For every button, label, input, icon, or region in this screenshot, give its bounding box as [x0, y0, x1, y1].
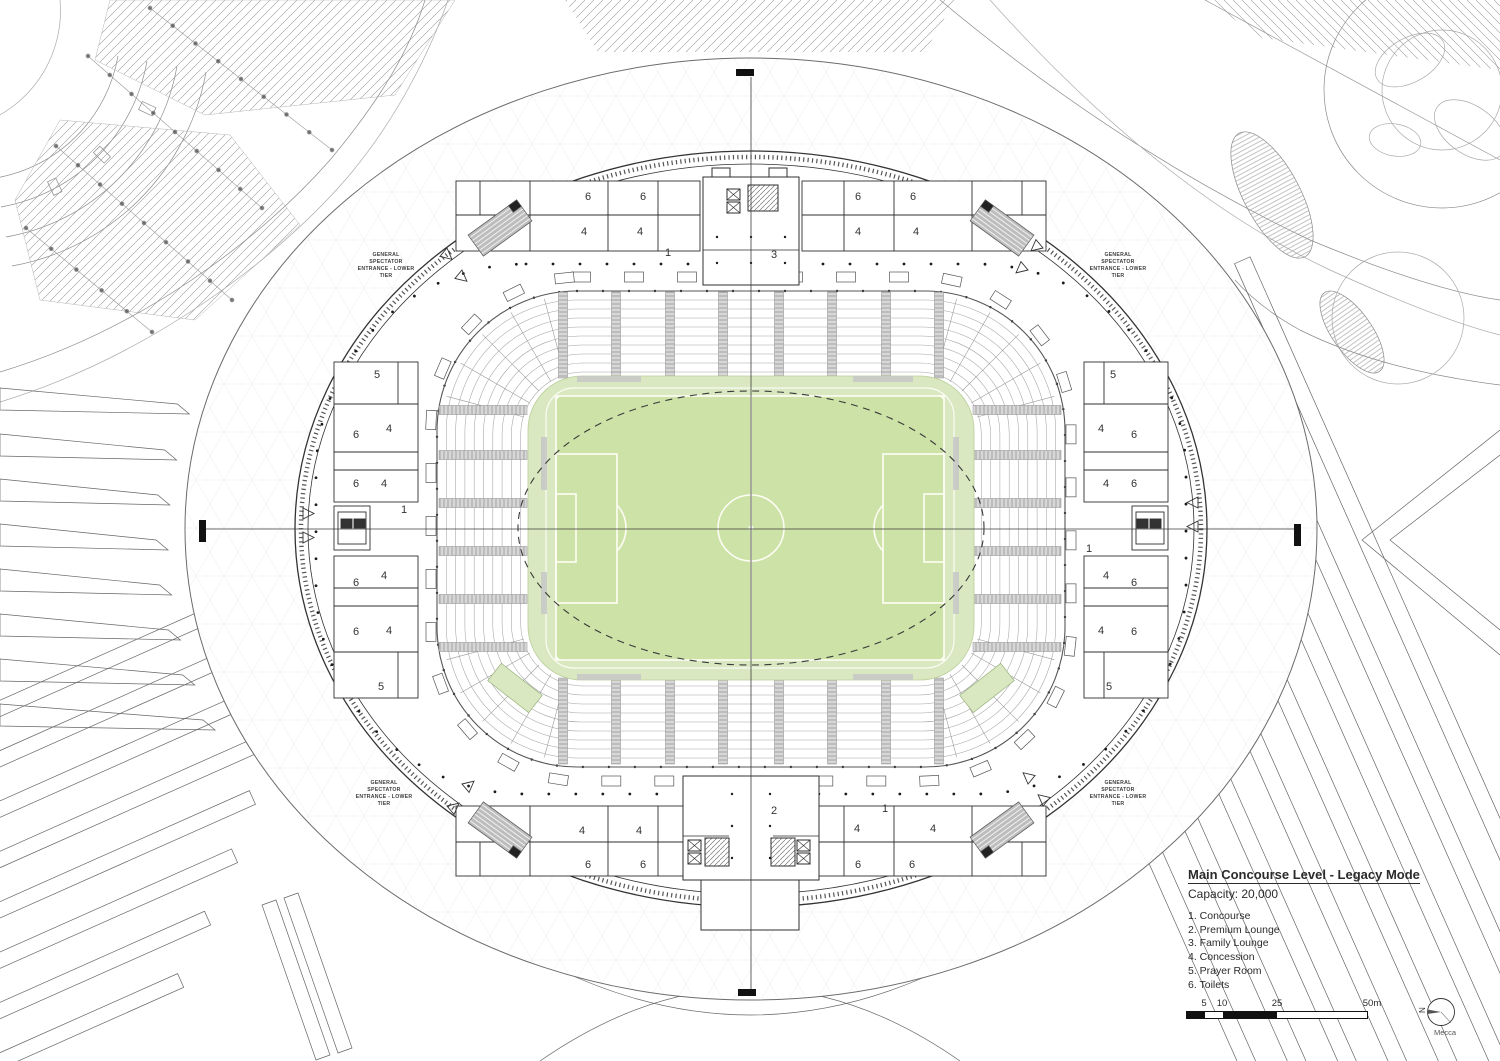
scale-tick: 10 [1217, 998, 1228, 1009]
legend-title: Main Concourse Level - Legacy Mode [1188, 867, 1420, 884]
legend-item: 3. Family Lounge [1188, 937, 1448, 951]
room-number-label: 4 [854, 823, 860, 835]
room-number-label: 3 [771, 249, 777, 261]
room-number-label: 4 [636, 825, 642, 837]
room-number-label: 6 [855, 191, 861, 203]
room-number-label: 5 [374, 369, 380, 381]
legend-capacity: Capacity: 20,000 [1188, 887, 1448, 901]
room-number-label: 4 [1103, 570, 1109, 582]
room-number-label: 1 [1086, 543, 1092, 555]
room-number-label: 6 [1131, 429, 1137, 441]
road-hatch-band [565, 0, 955, 52]
room-number-label: 4 [386, 625, 392, 637]
compass-north-label: N [1418, 1007, 1427, 1013]
legend-item: 6. Toilets [1188, 979, 1448, 993]
axis-tick-top [736, 69, 754, 76]
legend-item: 2. Premium Lounge [1188, 924, 1448, 938]
room-number-label: 4 [581, 226, 587, 238]
room-number-label: 5 [1110, 369, 1116, 381]
road-hatch-band [1205, 0, 1500, 70]
room-number-label: 6 [585, 859, 591, 871]
scale-tick: 50m [1363, 998, 1381, 1009]
room-number-label: 6 [910, 191, 916, 203]
room-number-label: 6 [1131, 626, 1137, 638]
room-number-label: 4 [637, 226, 643, 238]
room-number-label: 6 [353, 429, 359, 441]
room-number-label: 6 [353, 626, 359, 638]
room-number-label: 4 [930, 823, 936, 835]
axis-tick-right [1294, 524, 1301, 546]
room-number-label: 1 [882, 803, 888, 815]
room-number-label: 6 [909, 859, 915, 871]
room-number-label: 6 [353, 478, 359, 490]
legend-items: 1. Concourse 2. Premium Lounge 3. Family… [1188, 910, 1448, 992]
room-number-label: 4 [855, 226, 861, 238]
room-number-label: 5 [1106, 681, 1112, 693]
scale-tick: 5 [1201, 998, 1206, 1009]
room-number-label: 4 [381, 570, 387, 582]
legend-item: 1. Concourse [1188, 910, 1448, 924]
room-number-label: 6 [585, 191, 591, 203]
room-number-label: 6 [640, 191, 646, 203]
north-mecca-compass: N Mecca [1412, 984, 1476, 1048]
room-number-label: 1 [401, 504, 407, 516]
room-number-label: 6 [640, 859, 646, 871]
axis-tick-bottom [738, 989, 756, 996]
compass-mecca-label: Mecca [1434, 1028, 1457, 1037]
room-number-label: 1 [665, 247, 671, 259]
room-number-label: 4 [1098, 625, 1104, 637]
room-number-label: 4 [1098, 423, 1104, 435]
room-number-label: 4 [386, 423, 392, 435]
room-number-label: 5 [378, 681, 384, 693]
room-number-label: 4 [913, 226, 919, 238]
room-number-label: 6 [353, 577, 359, 589]
floor-plan-sheet: 6666444413444466662155666644441556666444… [0, 0, 1500, 1061]
room-number-label: 4 [1103, 478, 1109, 490]
room-number-label: 4 [579, 825, 585, 837]
axis-tick-left [199, 520, 206, 542]
legend-item: 4. Concession [1188, 951, 1448, 965]
legend: Main Concourse Level - Legacy Mode Capac… [1188, 866, 1448, 992]
scale-bar: 5 10 25 50m [1186, 998, 1386, 1022]
room-number-label: 2 [771, 805, 777, 817]
scale-tick: 25 [1272, 998, 1283, 1009]
room-number-label: 6 [1131, 478, 1137, 490]
room-number-label: 4 [381, 478, 387, 490]
scale-bar-graphic [1186, 1011, 1368, 1019]
room-number-label: 6 [855, 859, 861, 871]
room-number-label: 6 [1131, 577, 1137, 589]
legend-item: 5. Prayer Room [1188, 965, 1448, 979]
